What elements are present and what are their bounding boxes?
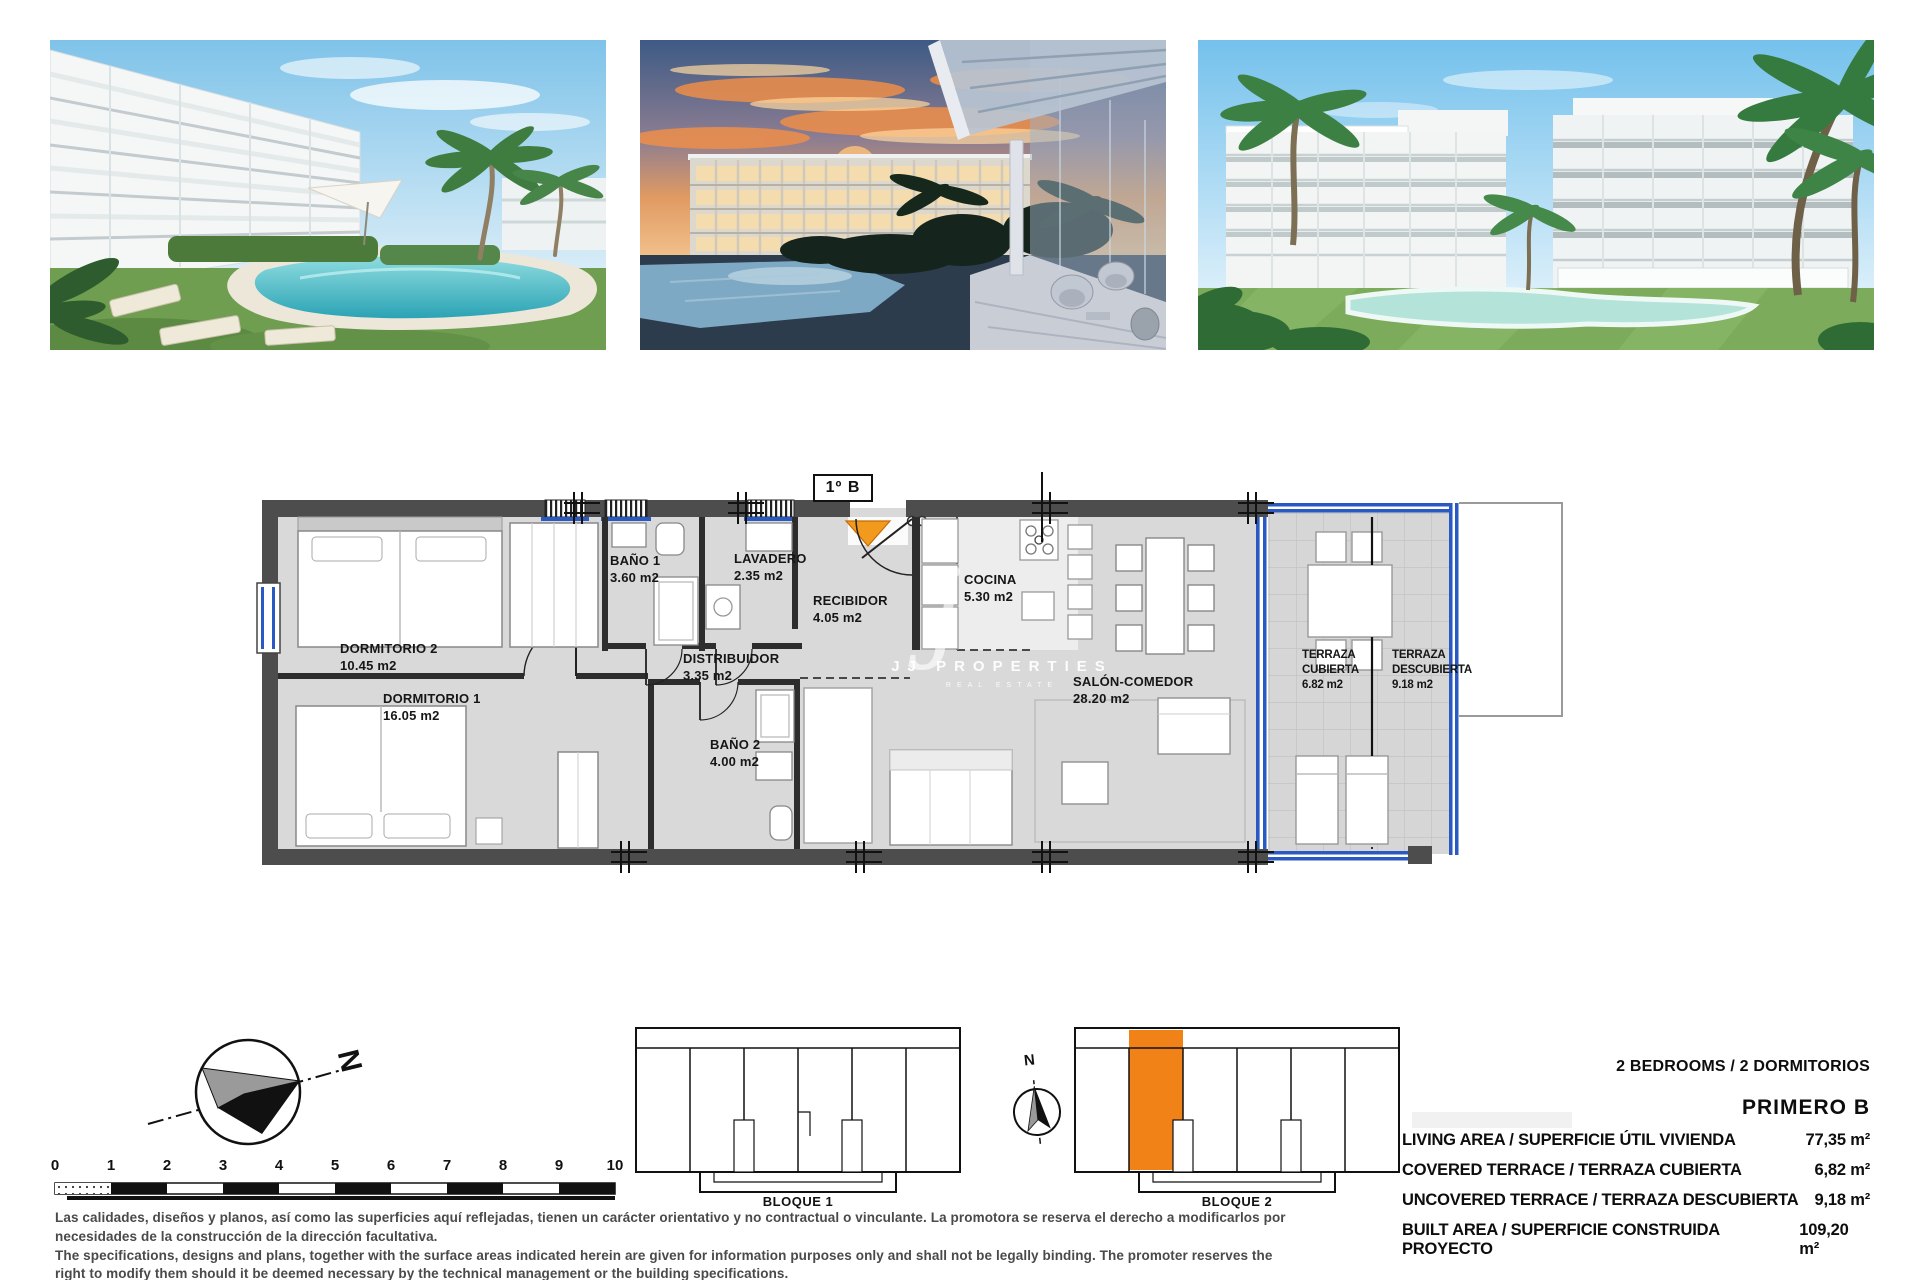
room-label-recibidor: RECIBIDOR 4.05 m2 (813, 593, 888, 627)
bedrooms-line: 2 BEDROOMS / 2 DORMITORIOS (1402, 1058, 1870, 1076)
scale-tick: 8 (491, 1157, 515, 1174)
spec-value: 109,20 m² (1799, 1221, 1870, 1259)
scale-tick: 7 (435, 1157, 459, 1174)
scale-tick: 10 (603, 1157, 627, 1174)
hedge (168, 236, 378, 262)
mini-north-label: N (1023, 1051, 1036, 1069)
room-label-terraza-cubierta: TERRAZA CUBIERTA 6.82 m2 (1302, 648, 1359, 693)
left-window (257, 583, 280, 653)
exterior-pool-illustration (50, 40, 606, 350)
compass-icon (148, 1040, 356, 1144)
room-label-dormitorio-2: DORMITORIO 2 10.45 m2 (340, 641, 438, 675)
scale-tick: 1 (99, 1157, 123, 1174)
room-label-cocina: COCINA 5.30 m2 (964, 572, 1016, 606)
unit-badge: 1º B (813, 474, 873, 502)
room-label-terraza-descubierta: TERRAZA DESCUBIERTA 9.18 m2 (1392, 648, 1472, 693)
scale-tick: 5 (323, 1157, 347, 1174)
bottom-graphics (40, 1010, 1600, 1210)
garden-pool-illustration (1198, 40, 1874, 350)
room-label-bano-2: BAÑO 2 4.00 m2 (710, 737, 760, 771)
spec-value: 9,18 m² (1815, 1191, 1870, 1210)
watermark-brand: JJ PROPERTIES (852, 658, 1152, 675)
photo-garden-pool (1198, 40, 1874, 350)
room-label-lavadero: LAVADERO 2.35 m2 (734, 551, 807, 585)
floor-label: PRIMERO B (1402, 1096, 1870, 1120)
mini-compass-icon (1011, 1078, 1063, 1146)
spec-label: COVERED TERRACE / TERRAZA CUBIERTA (1402, 1161, 1742, 1180)
dorm2-furniture (298, 517, 598, 647)
dining-set (1116, 538, 1214, 654)
brochure-page: 1º B DORMITORIO 2 10.45 m2 DORMITORIO 1 … (0, 0, 1920, 1280)
disclaimer-line-es-2: necesidades de la construcción de la dir… (55, 1229, 438, 1244)
photo-exterior-pool (50, 40, 606, 350)
specs-table: 2 BEDROOMS / 2 DORMITORIOS PRIMERO B LIV… (1402, 1058, 1870, 1259)
pillar (1010, 140, 1023, 275)
scale-tick: 6 (379, 1157, 403, 1174)
spec-row-uncovered-terrace: UNCOVERED TERRACE / TERRAZA DESCUBIERTA … (1402, 1191, 1870, 1210)
spec-label: UNCOVERED TERRACE / TERRAZA DESCUBIERTA (1402, 1191, 1798, 1210)
watermark-logo-icon: j (928, 556, 962, 664)
disclaimer-line-en-2: right to modify them should it be deemed… (55, 1266, 788, 1280)
room-label-dormitorio-1: DORMITORIO 1 16.05 m2 (383, 691, 481, 725)
uncovered-terrace-outline (1459, 503, 1562, 716)
room-label-bano-1: BAÑO 1 3.60 m2 (610, 553, 660, 587)
photo-terrace-dusk (640, 40, 1166, 350)
pool (255, 257, 570, 319)
spec-value: 6,82 m² (1815, 1161, 1870, 1180)
block1-diagram (636, 1028, 960, 1192)
scale-tick: 4 (267, 1157, 291, 1174)
watermark-tagline: REAL ESTATE (852, 682, 1152, 689)
spec-row-built-area: BUILT AREA / SUPERFICIE CONSTRUIDA PROYE… (1402, 1221, 1870, 1259)
scale-bar (55, 1183, 615, 1200)
spec-value: 77,35 m² (1806, 1131, 1870, 1150)
spec-label: LIVING AREA / SUPERFICIE ÚTIL VIVIENDA (1402, 1131, 1736, 1150)
spec-row-covered-terrace: COVERED TERRACE / TERRAZA CUBIERTA 6,82 … (1402, 1161, 1870, 1180)
scale-tick: 2 (155, 1157, 179, 1174)
terrace-dusk-illustration (640, 40, 1166, 350)
floor-plan-drawing (250, 470, 1580, 880)
spec-row-living-area: LIVING AREA / SUPERFICIE ÚTIL VIVIENDA 7… (1402, 1131, 1870, 1150)
block1-label: BLOQUE 1 (636, 1194, 960, 1209)
disclaimer-line-en-1: The specifications, designs and plans, t… (55, 1248, 1272, 1263)
scale-tick: 3 (211, 1157, 235, 1174)
disclaimer-line-es-1: Las calidades, diseños y planos, así com… (55, 1210, 1286, 1225)
scale-tick: 9 (547, 1157, 571, 1174)
room-label-salon-comedor: SALÓN-COMEDOR 28.20 m2 (1073, 674, 1193, 708)
block2-label: BLOQUE 2 (1075, 1194, 1399, 1209)
spec-label: BUILT AREA / SUPERFICIE CONSTRUIDA PROYE… (1402, 1221, 1799, 1259)
room-label-distribuidor: DISTRIBUIDOR 3.35 m2 (683, 651, 779, 685)
scale-tick: 0 (43, 1157, 67, 1174)
block2-diagram (1075, 1028, 1399, 1192)
